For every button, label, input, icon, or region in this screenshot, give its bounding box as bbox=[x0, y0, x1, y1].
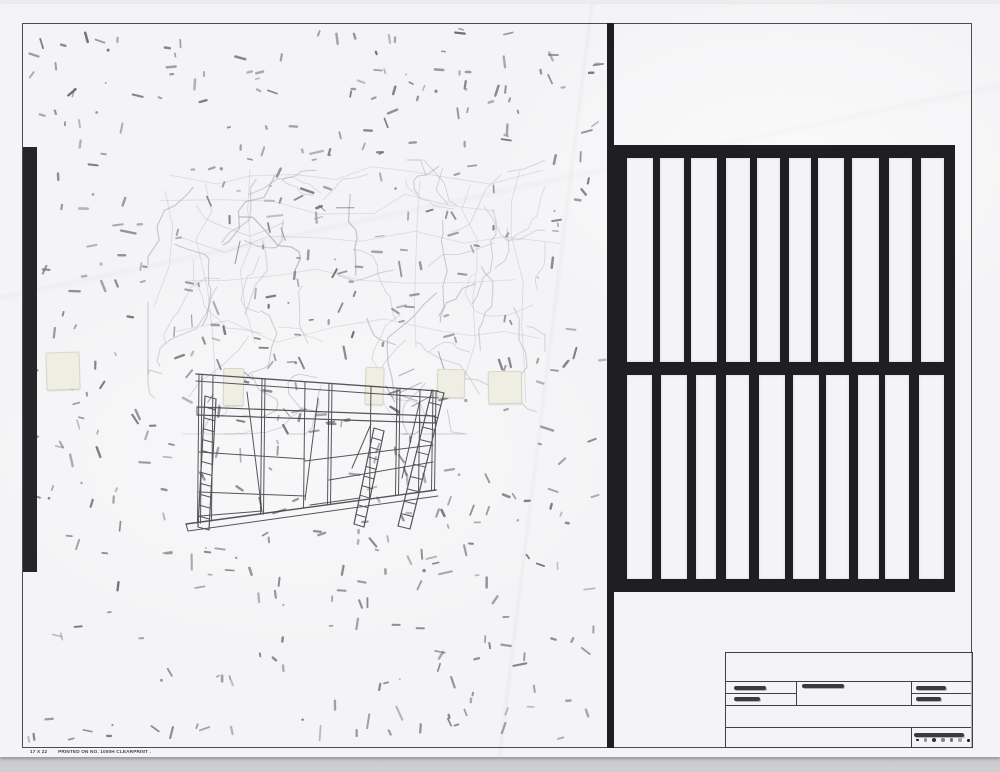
grid-slot bbox=[818, 158, 844, 362]
grid-slot bbox=[726, 158, 750, 362]
revision-dot bbox=[916, 739, 919, 742]
print-stock-label: PRINTED ON NO. 1000H CLEARPRINT . bbox=[58, 750, 151, 755]
grid-slot bbox=[793, 375, 819, 579]
title-block-rule bbox=[726, 727, 971, 728]
revision-dot bbox=[950, 738, 954, 742]
grid-slot bbox=[919, 375, 944, 579]
sheet-size-label: 17 X 22 bbox=[30, 750, 47, 755]
redacted-field-value bbox=[734, 697, 760, 701]
redacted-field-value bbox=[734, 686, 766, 690]
grid-row bbox=[627, 375, 944, 579]
grid-slot bbox=[889, 158, 912, 362]
grid-slot bbox=[696, 375, 716, 579]
revision-dot bbox=[941, 738, 944, 741]
revision-dot bbox=[932, 738, 936, 742]
title-block-rule bbox=[726, 693, 796, 694]
clearprint-stamp: 17 X 22 PRINTED ON NO. 1000H CLEARPRINT … bbox=[30, 750, 151, 755]
title-block bbox=[725, 652, 973, 748]
grid-slot bbox=[852, 158, 879, 362]
grid-slot bbox=[921, 158, 944, 362]
grid-slot bbox=[660, 158, 684, 362]
grid-slot bbox=[691, 158, 717, 362]
left-edge-black-tape-bar bbox=[23, 147, 37, 572]
drafting-sheet-photo: 17 X 22 PRINTED ON NO. 1000H CLEARPRINT … bbox=[0, 0, 1000, 772]
grid-slot bbox=[858, 375, 878, 579]
revision-dot-row bbox=[916, 738, 970, 742]
grid-row bbox=[627, 158, 944, 362]
redacted-field-value bbox=[802, 684, 844, 688]
title-block-rule bbox=[726, 705, 971, 706]
revision-dot bbox=[967, 739, 970, 742]
grid-slot bbox=[661, 375, 687, 579]
title-block-rule bbox=[911, 727, 912, 747]
grid-slot bbox=[759, 375, 785, 579]
revision-dot bbox=[924, 738, 928, 742]
title-block-rule bbox=[796, 681, 797, 705]
grid-slot bbox=[789, 158, 811, 362]
redacted-field-value bbox=[914, 733, 964, 737]
grid-slot bbox=[726, 375, 749, 579]
grid-slot bbox=[826, 375, 849, 579]
black-tape-window-grid bbox=[612, 145, 955, 592]
revision-dot bbox=[958, 738, 961, 741]
title-block-rule bbox=[726, 681, 971, 682]
title-block-rule bbox=[911, 693, 971, 694]
grid-slot bbox=[885, 375, 909, 579]
redacted-field-value bbox=[916, 697, 941, 701]
grid-slot bbox=[627, 375, 652, 579]
grid-slot bbox=[627, 158, 653, 362]
redacted-field-value bbox=[916, 686, 946, 690]
grid-slot bbox=[757, 158, 780, 362]
